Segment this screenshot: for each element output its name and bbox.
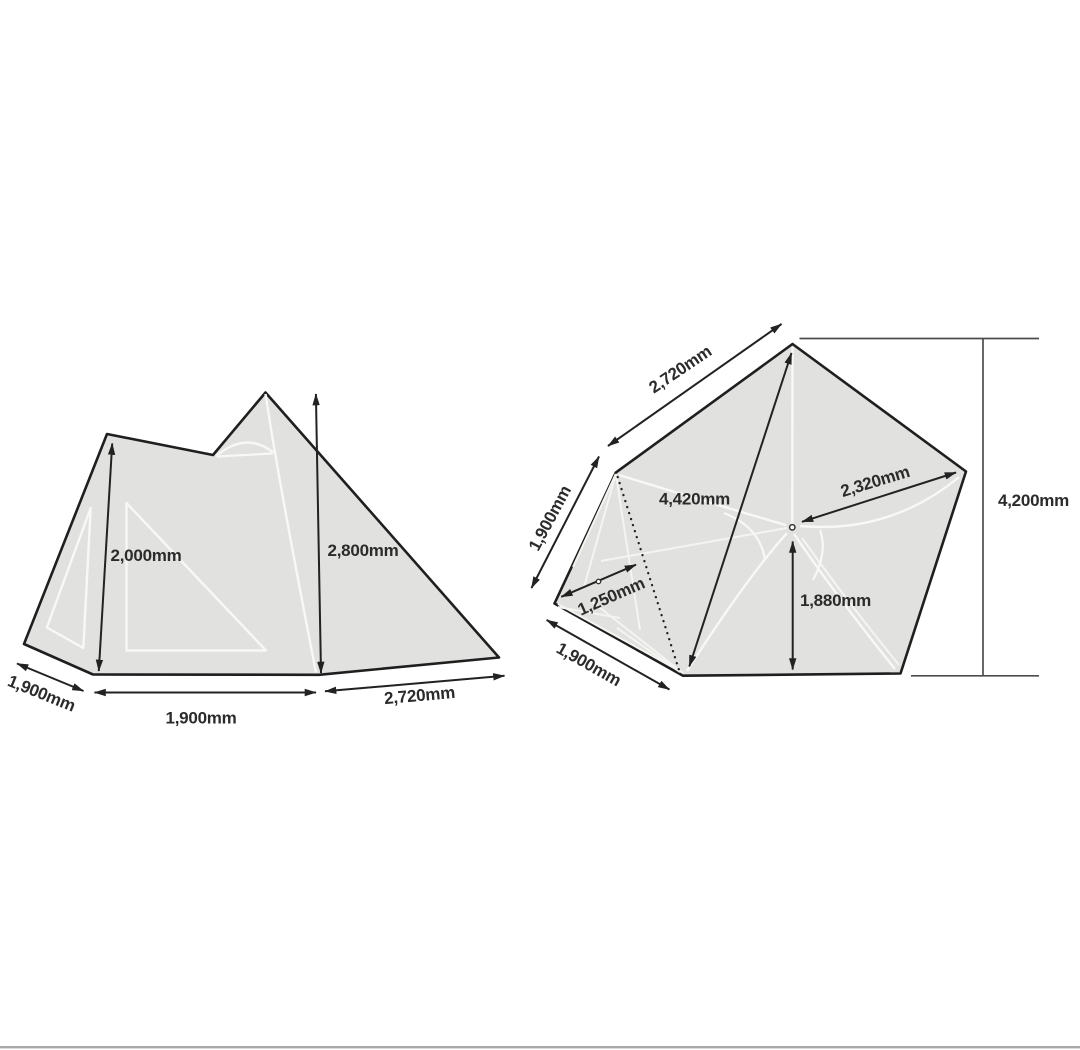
svg-text:1,900mm: 1,900mm: [5, 671, 78, 715]
svg-text:2,720mm: 2,720mm: [646, 342, 716, 398]
svg-text:1,900mm: 1,900mm: [553, 639, 624, 691]
svg-text:1,900mm: 1,900mm: [165, 709, 236, 728]
svg-text:4,200mm: 4,200mm: [998, 491, 1069, 510]
svg-text:2,720mm: 2,720mm: [383, 683, 456, 708]
svg-text:4,420mm: 4,420mm: [659, 490, 730, 509]
svg-text:2,000mm: 2,000mm: [110, 546, 181, 565]
svg-text:2,800mm: 2,800mm: [327, 541, 398, 560]
svg-text:1,880mm: 1,880mm: [800, 591, 871, 610]
